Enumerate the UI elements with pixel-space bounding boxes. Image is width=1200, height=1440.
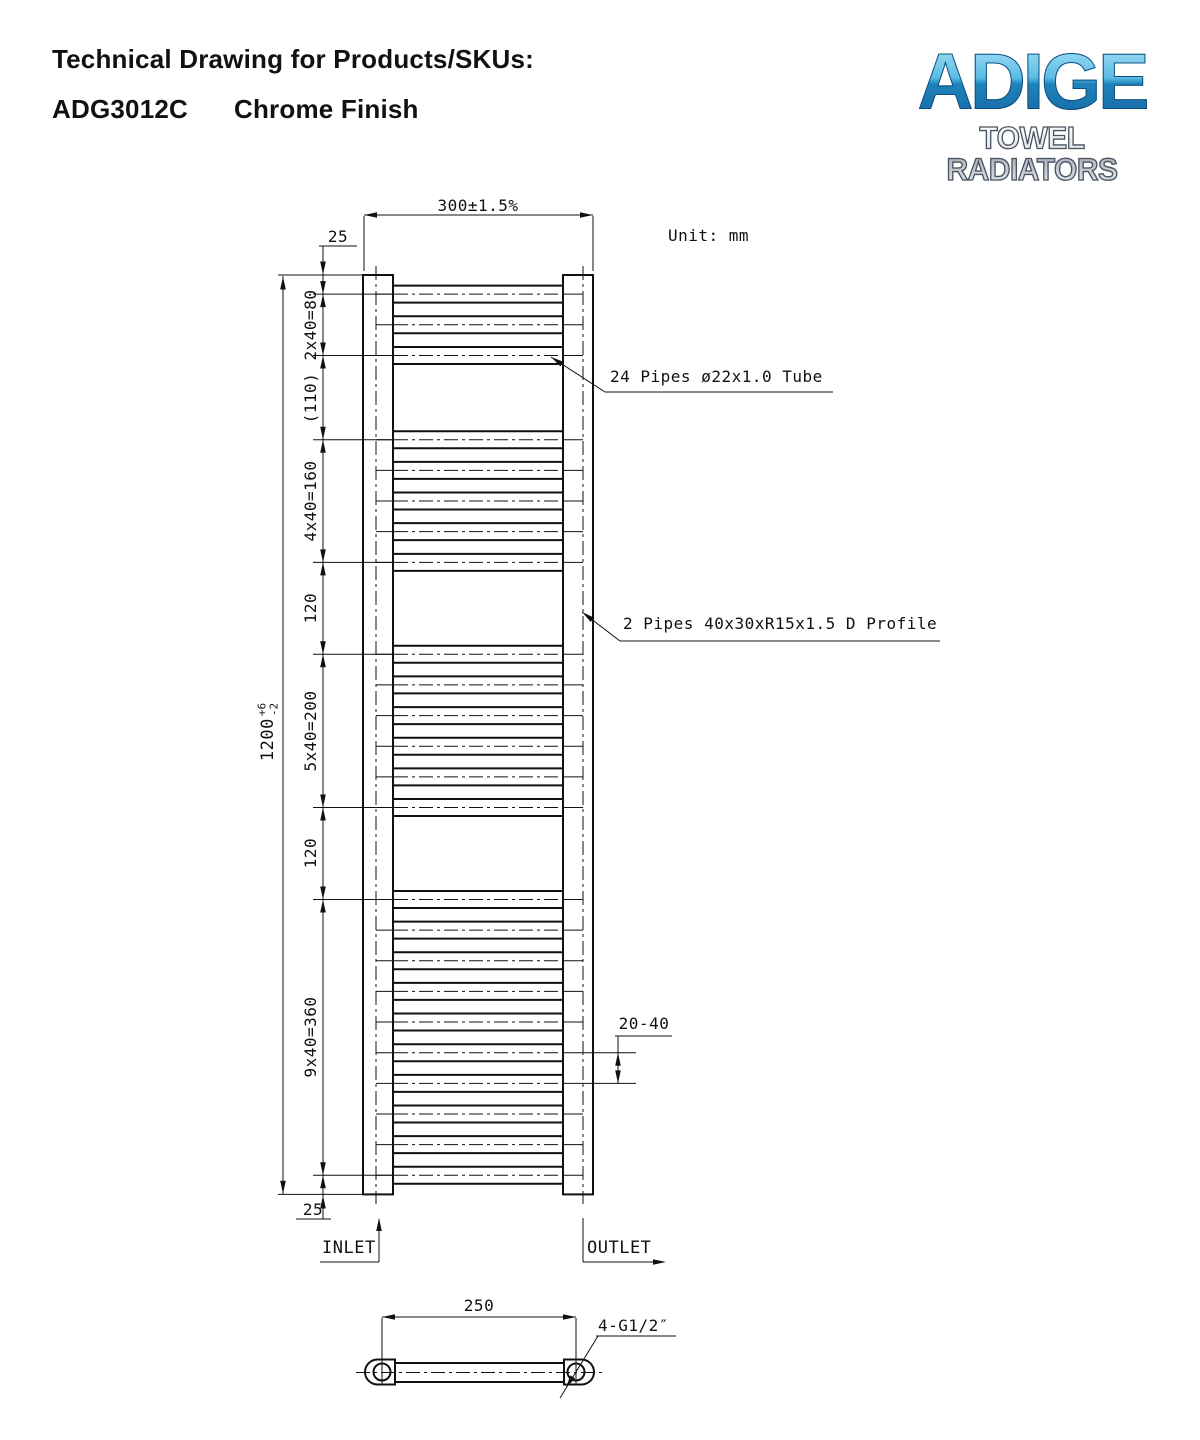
dimension-arrow <box>615 1070 621 1083</box>
chain-dim-label: 120 <box>303 838 319 868</box>
note-pipes-label: 24 Pipes ø22x1.0 Tube <box>610 369 823 385</box>
outlet-arrow <box>653 1259 666 1265</box>
unit-label: Unit: mm <box>668 228 749 244</box>
thread-label: 4-G1/2″ <box>598 1318 669 1334</box>
chain-dim-label: 5x40=200 <box>303 690 319 771</box>
left-rail <box>363 275 393 1194</box>
dimension-arrow <box>382 1314 395 1320</box>
dim-overall-plus: +6 <box>256 703 268 716</box>
dim-overall-base: 1200 <box>258 718 278 761</box>
dim-overall-tolerance: +6-2 <box>256 703 279 716</box>
inlet-label: INLET <box>322 1240 376 1257</box>
note-profile-label: 2 Pipes 40x30xR15x1.5 D Profile <box>623 616 937 632</box>
chain-dim-label: 2x40=80 <box>303 289 319 360</box>
dim-width-label: 300±1.5% <box>437 198 518 214</box>
dim-bottom-offset-label: 25 <box>303 1202 323 1218</box>
dimension-arrow <box>580 212 593 218</box>
chain-dim-label: 4x40=160 <box>303 460 319 541</box>
inlet-arrow <box>376 1218 382 1231</box>
dimension-arrow <box>563 1314 576 1320</box>
dimension-arrow <box>280 277 286 290</box>
drawing-geometry <box>0 0 1200 1440</box>
dimension-arrow <box>615 1053 621 1066</box>
dim-centers-label: 250 <box>464 1298 494 1314</box>
outlet-label: OUTLET <box>587 1240 651 1257</box>
chain-dim-label: (110) <box>303 372 319 423</box>
dim-overall-label: 1200+6-2 <box>256 703 279 761</box>
dimension-arrow <box>364 212 377 218</box>
right-rail <box>563 275 593 1194</box>
technical-drawing-canvas: Technical Drawing for Products/SKUs: ADG… <box>0 0 1200 1440</box>
dim-bracket-label: 20-40 <box>619 1016 670 1032</box>
dimension-arrow <box>280 1181 286 1194</box>
dim-overall-minus: -2 <box>268 703 280 716</box>
chain-dim-label: 9x40=360 <box>303 997 319 1078</box>
chain-dim-label: 120 <box>303 593 319 623</box>
dim-top-offset-label: 25 <box>328 229 348 245</box>
